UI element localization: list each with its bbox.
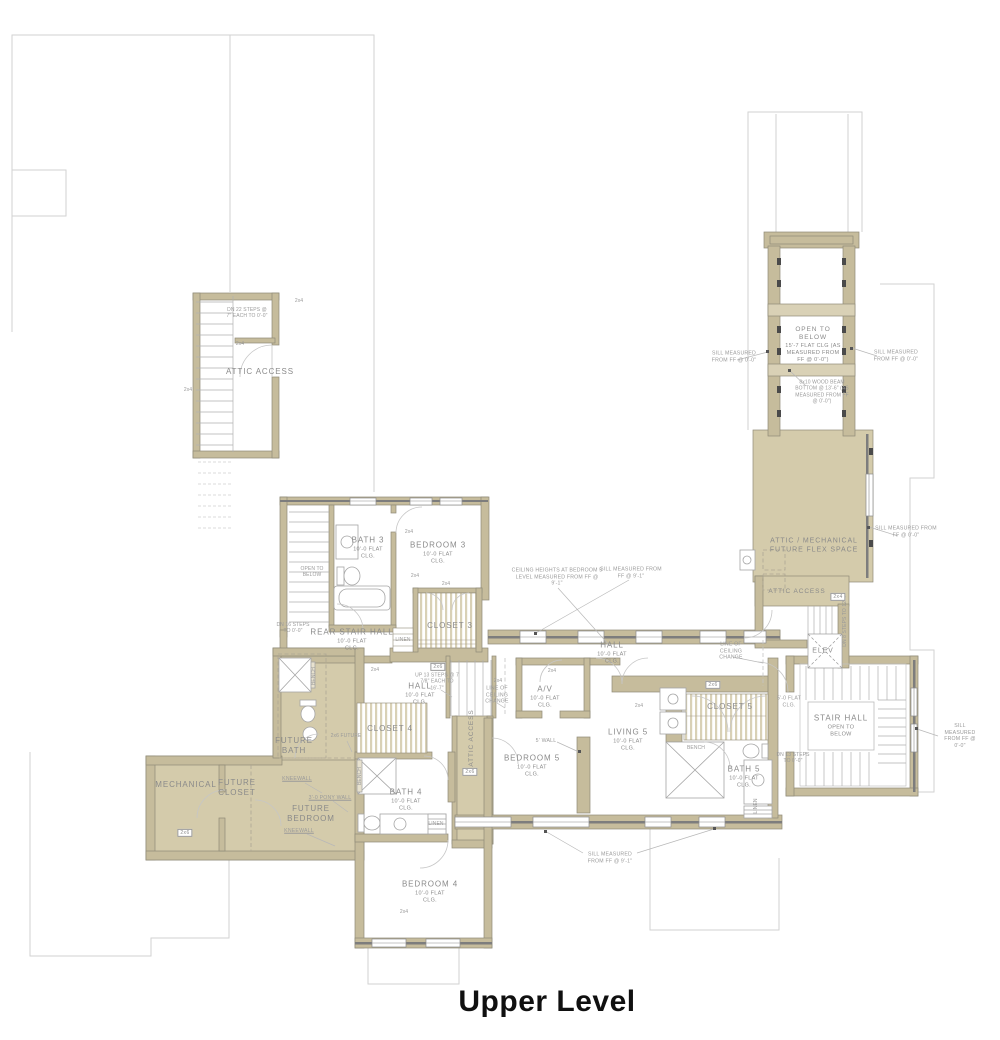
label-bench-future: BENCH — [311, 667, 317, 685]
room-label-elev: ELEV — [812, 648, 834, 657]
room-label-hall-lower: HALL10'-0 FLAT CLG. — [591, 641, 633, 666]
room-label-attic-access-tl: ATTIC ACCESS — [226, 367, 294, 377]
room-label-bath3: BATH 310'-0 FLAT CLG. — [347, 536, 389, 561]
label-linen4: LINEN — [428, 821, 443, 827]
room-label-bedroom3: BEDROOM 310'-0 FLAT CLG. — [410, 541, 466, 566]
stud-marker-boxed: 2x6 — [177, 829, 192, 837]
stud-marker: 2x4 — [411, 573, 419, 579]
stud-marker: 2x4 — [405, 529, 413, 535]
stud-marker: 2x4 — [371, 667, 379, 673]
stud-marker-boxed: 2x6 — [462, 768, 477, 776]
room-label-mechanical: MECHANICAL — [155, 780, 216, 790]
stud-marker: 2x4 — [295, 298, 303, 304]
note-ceiling-change-1: LINE OF CEILING CHANGE — [475, 685, 519, 705]
note-sill-0-void-left: SILL MEASURED FROM FF @ 0'-0" — [706, 351, 762, 364]
note-ceiling-change-2: LINE OF CEILING CHANGE — [709, 641, 753, 661]
stud-marker-boxed: 2x4 — [830, 593, 845, 601]
note-future-26: 2x6 FUTURE — [331, 733, 362, 739]
note-up-steps: UP 13 STEPS @ 7 7/8" EACH TO 16'-7" — [415, 673, 459, 692]
note-kneewall-1: KNEEWALL — [282, 776, 312, 783]
stud-marker: 2x4 — [442, 581, 450, 587]
label-bench5: BENCH — [687, 745, 705, 751]
note-sill-0-stair-hall: SILL MEASURED FROM FF @ 0'-0" — [940, 723, 980, 749]
room-label-attic-access-strip: ATTIC ACCESS — [468, 709, 476, 766]
room-label-closet5: CLOSET 5 — [707, 702, 753, 712]
room-label-bedroom5: BEDROOM 510'-0 FLAT CLG. — [504, 754, 560, 779]
room-label-av: A/V10'-0 FLAT CLG. — [524, 685, 566, 710]
room-label-closet4: CLOSET 4 — [367, 724, 413, 734]
note-sill-9-bottom: SILL MEASURED FROM FF @ 9'-1" — [582, 852, 638, 865]
note-pony-wall: 3'-0 PONY WALL — [309, 795, 352, 802]
room-label-attic-access-right: ATTIC ACCESS — [768, 588, 825, 596]
floor-plan-canvas: ATTIC ACCESS DN 22 STEPS @ 7" EACH TO 0'… — [0, 0, 1000, 1040]
room-label-rear-stair-hall: REAR STAIR HALL10'-0 FLAT CLG. — [310, 628, 393, 653]
room-label-future-bedroom: FUTURE BEDROOM — [286, 804, 336, 824]
floor-plan-drawing — [0, 0, 1000, 1040]
note-dn-steps-elev: DN 8 STEPS TO 12'-7" — [842, 593, 848, 646]
note-sill-0-flex: SILL MEASURED FROM FF @ 0'-0" — [873, 526, 939, 539]
stud-marker: 2x4 — [548, 668, 556, 674]
stud-marker: 2x4 — [494, 678, 502, 684]
page-title: Upper Level — [458, 985, 635, 1019]
note-open-below-left: OPEN TO BELOW — [294, 566, 330, 579]
note-kneewall-2: KNEEWALL — [284, 828, 314, 835]
stud-marker-boxed: 2x6 — [705, 681, 720, 689]
stud-marker: 2x4 — [184, 387, 192, 393]
room-label-flex-space: ATTIC / MECHANICALFUTURE FLEX SPACE — [770, 537, 858, 555]
note-ceiling-heights: CEILING HEIGHTS AT BEDROOM 5 LEVEL MEASU… — [511, 567, 603, 587]
note-dn-steps-attic: DN 22 STEPS @ 7" EACH TO 0'-0" — [225, 307, 269, 320]
stud-marker: 2x4 — [236, 341, 244, 347]
room-label-stair-hall: STAIR HALLOPEN TO BELOW — [814, 714, 868, 739]
note-sill-9-top: SILL MEASURED FROM FF @ 9'-1" — [598, 567, 664, 580]
room-label-future-closet: FUTURE CLOSET — [217, 778, 257, 798]
note-dn-steps-rear: DN 16 STEPS TO 0'-0" — [275, 622, 311, 635]
leader-dots — [534, 347, 918, 833]
stud-marker: 2x4 — [635, 703, 643, 709]
room-label-bedroom4: BEDROOM 410'-0 FLAT CLG. — [402, 880, 458, 905]
room-label-open-below-void: OPEN TO BELOW15'-7 FLAT CLG (AS MEASURED… — [785, 326, 841, 364]
label-linen3: LINEN — [395, 637, 410, 643]
room-label-future-bath: FUTURE BATH — [274, 736, 314, 756]
note-beam: 8x10 WOOD BEAM BOTTOM @ 13'-6" (AS MEASU… — [794, 380, 850, 405]
note-dn-steps-stair-hall: DN 13 STEPS TO 0'-0" — [775, 752, 811, 765]
label-bench4: BENCH — [357, 767, 363, 785]
note-stair-hall-clg: 5'-0 FLAT CLG. — [771, 696, 807, 709]
room-label-closet3: CLOSET 3 — [427, 621, 473, 631]
stud-marker: 2x4 — [400, 909, 408, 915]
room-label-living5: LIVING 510'-0 FLAT CLG. — [607, 728, 649, 753]
room-label-bath5: BATH 510'-0 FLAT CLG. — [723, 765, 765, 790]
stud-marker-boxed: 2x6 — [430, 663, 445, 671]
note-sill-0-void-right: SILL MEASURED FROM FF @ 0'-0" — [868, 350, 924, 363]
note-five-wall: 5' WALL — [536, 738, 557, 745]
label-linen5: LINEN — [753, 798, 759, 813]
room-label-bath4: BATH 410'-0 FLAT CLG. — [385, 788, 427, 813]
